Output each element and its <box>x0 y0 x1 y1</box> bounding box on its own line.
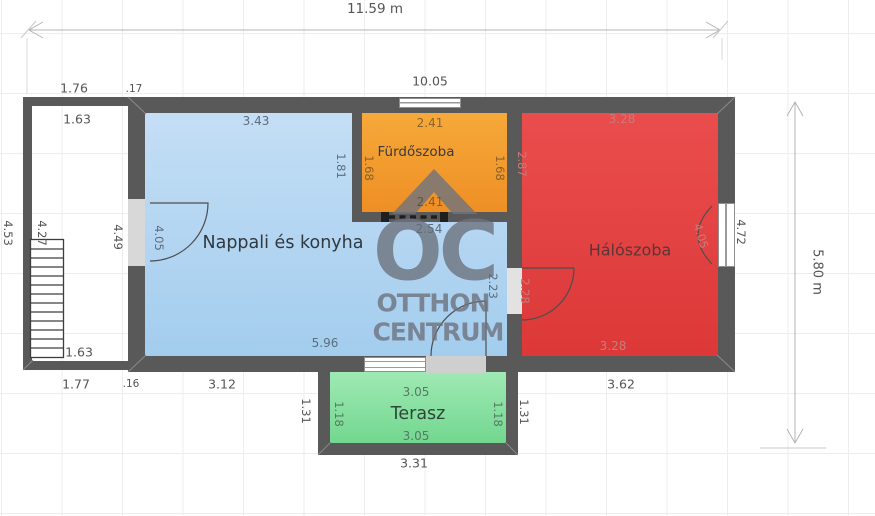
dim-house-left-wall: 4.49 <box>111 224 125 250</box>
stairs <box>31 240 64 358</box>
dim-porch-stairs: 4.27 <box>35 220 49 246</box>
dim-porch-top-outside: 1.76 <box>60 81 88 96</box>
dim-porch-bottom-inside: 1.63 <box>65 345 93 360</box>
dim-terrace-bottom: 3.05 <box>403 429 430 443</box>
watermark-monogram: OC <box>373 205 495 300</box>
watermark-line2: CENTRUM <box>373 318 504 347</box>
dim-bathroom-top: 2.41 <box>417 116 444 130</box>
dim-porch-bottom-wall: .16 <box>123 378 140 390</box>
dim-bedroom-door-left: 2.28 <box>518 278 532 304</box>
dim-bedroom-outside-bottom: 3.62 <box>607 377 635 392</box>
room-label-bedroom: Hálószoba <box>589 241 672 260</box>
dim-bedroom-left-upper: 2.87 <box>515 151 529 177</box>
dim-living-below-bath: 2.54 <box>416 222 443 236</box>
dim-living-bottom: 5.96 <box>312 336 339 350</box>
dim-porch-left-outside: 4.53 <box>1 220 15 246</box>
dim-bathroom-right: 1.68 <box>493 155 507 181</box>
dim-bathroom-left: 1.68 <box>362 155 376 181</box>
dim-terrace-right: 1.18 <box>491 401 505 427</box>
dim-porch-top-inside: 1.63 <box>63 112 91 127</box>
dim-total-width: 11.59 m <box>347 1 403 17</box>
dim-living-right-upper: 1.81 <box>334 153 348 179</box>
dim-terrace-left: 1.18 <box>332 401 346 427</box>
dim-inner-width: 10.05 <box>412 74 448 89</box>
dim-living-top: 3.43 <box>243 114 270 128</box>
dim-living-left-door: 4.05 <box>152 225 166 251</box>
dim-bedroom-bottom: 3.28 <box>600 339 627 353</box>
dim-bathroom-bottom: 2.41 <box>417 195 444 209</box>
floorplan-canvas: OC OTTHON CENTRUM Nappali és konyha Fürd… <box>0 0 875 516</box>
room-label-terrace: Terasz <box>391 404 446 424</box>
dim-living-outside-bottom: 3.12 <box>208 377 236 392</box>
dim-terrace-top: 3.05 <box>403 385 430 399</box>
room-label-living: Nappali és konyha <box>203 233 364 253</box>
watermark-line1: OTTHON <box>376 289 489 318</box>
dim-porch-bottom-outside: 1.77 <box>62 377 90 392</box>
dim-bedroom-top: 3.28 <box>609 112 636 126</box>
dim-bedroom-outside-right: 4.72 <box>734 219 748 245</box>
dim-total-height: 5.80 m <box>810 249 825 295</box>
dim-porch-top-wall: .17 <box>126 83 143 95</box>
dim-terrace-outside-bottom: 3.31 <box>400 456 428 471</box>
dim-terrace-outside-left: 1.31 <box>299 398 313 424</box>
room-label-bathroom: Fürdőszoba <box>378 144 455 160</box>
dim-terrace-outside-right: 1.31 <box>517 399 531 425</box>
dim-living-right-lower: 2.23 <box>486 273 500 299</box>
